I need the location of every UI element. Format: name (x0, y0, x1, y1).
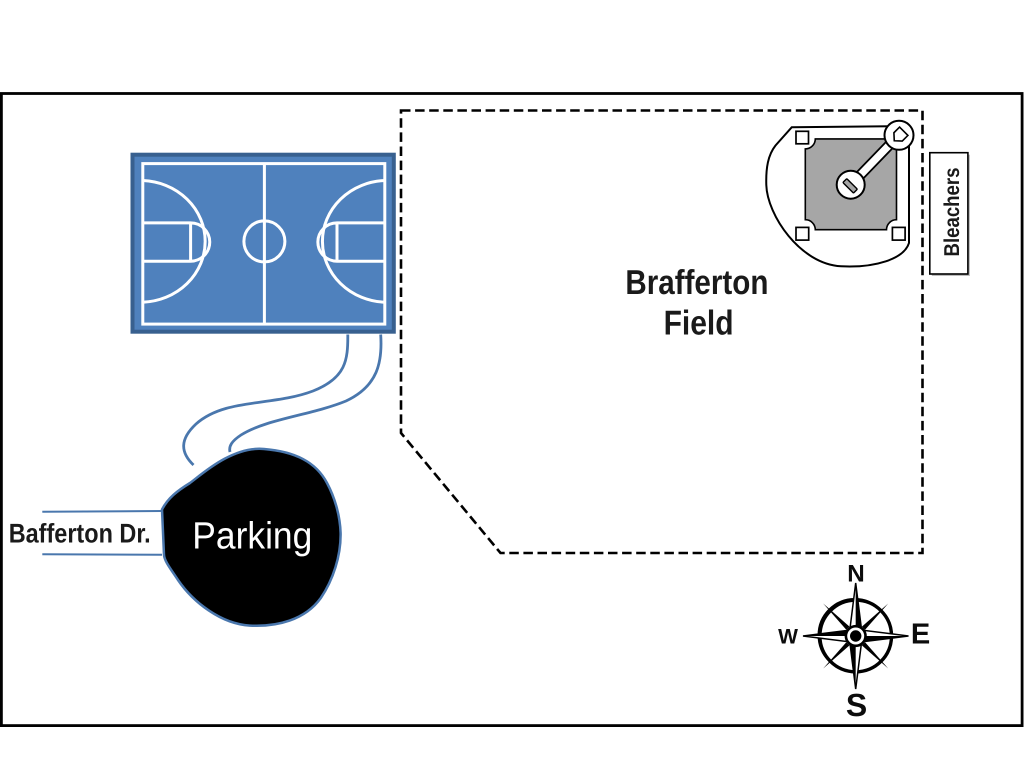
svg-text:S: S (846, 687, 867, 723)
svg-text:Bafferton Dr.: Bafferton Dr. (9, 518, 151, 548)
svg-text:E: E (911, 619, 930, 651)
svg-text:Bleachers: Bleachers (940, 167, 964, 256)
svg-text:N: N (847, 560, 865, 587)
svg-text:Parking: Parking (192, 515, 312, 557)
svg-text:W: W (778, 626, 798, 649)
svg-text:Brafferton: Brafferton (625, 264, 768, 302)
svg-text:Field: Field (664, 305, 734, 343)
